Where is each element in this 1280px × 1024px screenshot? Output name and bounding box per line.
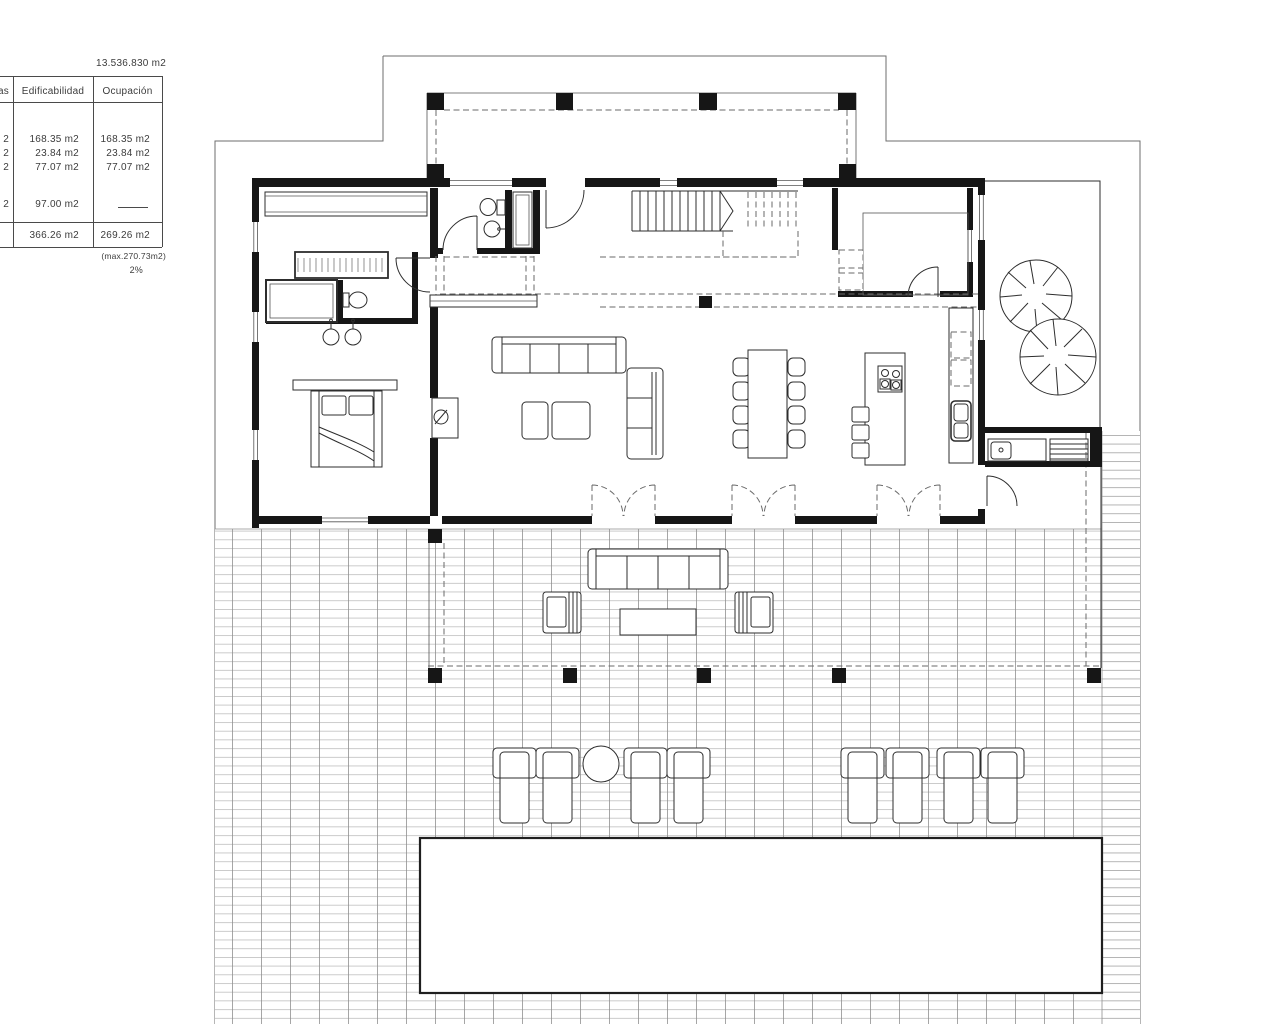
table-cell: 23.84 m2 <box>93 147 150 160</box>
table-total-ocupacion: 269.26 m2 <box>93 229 150 242</box>
table-cell: 2 <box>0 161 9 174</box>
swimming-pool <box>420 838 1102 993</box>
table-cell: 2 <box>0 133 9 146</box>
upper-floor-overhang <box>427 93 856 178</box>
table-cell: 77.07 m2 <box>93 161 150 174</box>
footnote-max: (max.270.73m2) <box>0 251 166 261</box>
floor-plan-sheet: 13.536.830 m2 as Edificabilidad Ocupació… <box>0 0 1280 1024</box>
table-cell: 2 <box>0 198 9 211</box>
table-header-col1: as <box>0 85 9 98</box>
table-total-edificabilidad: 366.26 m2 <box>13 229 79 242</box>
parcel-area-note: 13.536.830 m2 <box>0 58 166 69</box>
table-cell: 77.07 m2 <box>13 161 79 174</box>
table-cell-dash <box>118 207 148 208</box>
areas-table: as Edificabilidad Ocupación 2 168.35 m2 … <box>0 76 162 247</box>
house <box>252 178 985 528</box>
table-cell: 97.00 m2 <box>13 198 79 211</box>
shaft <box>432 398 458 438</box>
table-cell: 2 <box>0 147 9 160</box>
floor-plan-drawing <box>0 0 1280 1024</box>
table-cell: 168.35 m2 <box>93 133 150 146</box>
table-header-ocupacion: Ocupación <box>93 85 162 98</box>
outdoor-kitchen <box>985 427 1102 506</box>
table-header-edificabilidad: Edificabilidad <box>13 85 93 98</box>
table-cell: 23.84 m2 <box>13 147 79 160</box>
table-cell: 168.35 m2 <box>13 133 79 146</box>
footnote-percent: 2% <box>0 265 143 275</box>
